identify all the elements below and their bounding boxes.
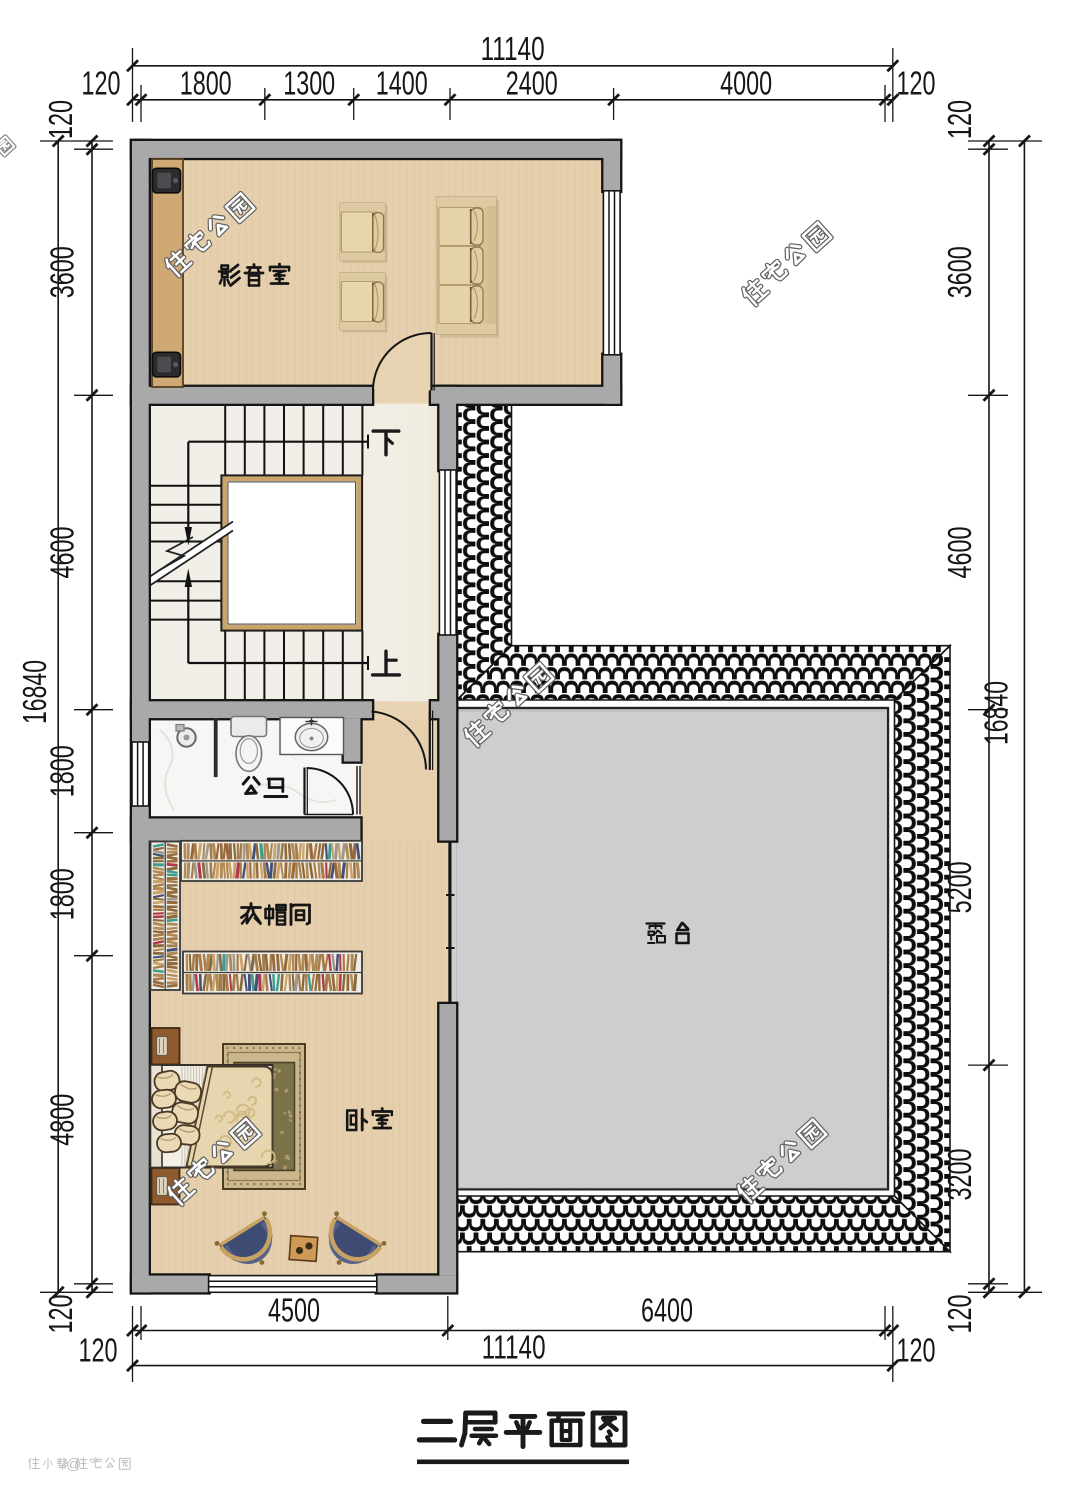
svg-text:11140: 11140 [482,1329,546,1366]
svg-text:6400: 6400 [641,1292,693,1329]
svg-text:4800: 4800 [44,1094,81,1146]
svg-text:16840: 16840 [978,681,1015,745]
svg-text:120: 120 [82,65,121,102]
svg-text:120: 120 [897,1332,936,1369]
svg-text:3200: 3200 [941,1149,978,1201]
svg-text:3600: 3600 [941,246,978,298]
svg-text:120: 120 [897,65,936,102]
svg-text:1800: 1800 [44,745,81,797]
svg-text:5200: 5200 [941,861,978,913]
svg-text:1800: 1800 [44,868,81,920]
svg-text:3600: 3600 [44,246,81,298]
svg-text:120: 120 [941,1295,978,1334]
svg-text:4600: 4600 [941,527,978,579]
svg-text:11140: 11140 [481,30,545,67]
svg-text:120: 120 [42,100,79,139]
svg-text:@: @ [66,1456,81,1473]
svg-text:2400: 2400 [506,65,558,102]
svg-text:1300: 1300 [283,65,335,102]
svg-text:16840: 16840 [16,660,53,724]
svg-text:120: 120 [941,100,978,139]
svg-text:1400: 1400 [376,65,428,102]
svg-text:4600: 4600 [44,527,81,579]
svg-text:120: 120 [79,1332,118,1369]
svg-text:120: 120 [42,1295,79,1334]
svg-text:4500: 4500 [268,1292,320,1329]
svg-text:4000: 4000 [720,65,772,102]
svg-text:1800: 1800 [180,65,232,102]
